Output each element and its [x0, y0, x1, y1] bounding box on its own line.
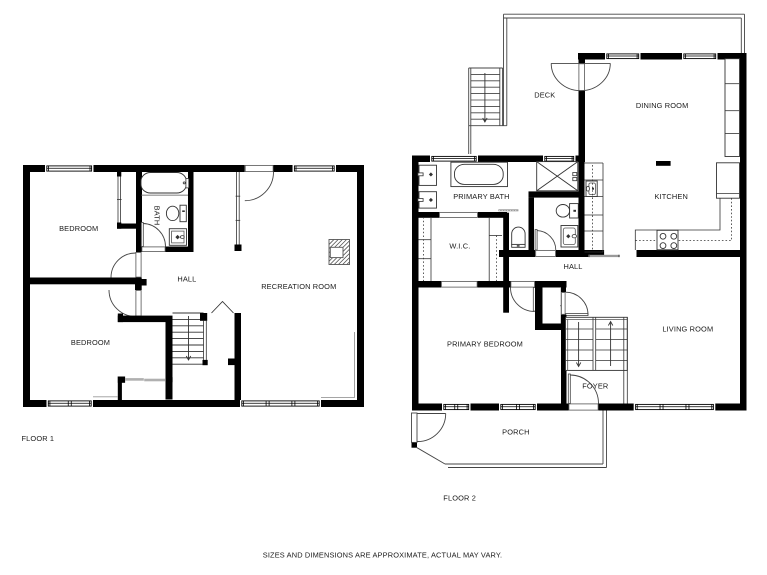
svg-text:HALL: HALL	[177, 274, 196, 283]
svg-text:BEDROOM: BEDROOM	[59, 224, 98, 233]
svg-text:W.I.C.: W.I.C.	[449, 241, 470, 250]
svg-text:HALL: HALL	[563, 262, 582, 271]
svg-text:DINING ROOM: DINING ROOM	[636, 101, 689, 110]
svg-text:LIVING ROOM: LIVING ROOM	[662, 324, 713, 333]
svg-text:BATH: BATH	[153, 206, 162, 226]
svg-text:SIZES AND DIMENSIONS ARE APPRO: SIZES AND DIMENSIONS ARE APPROXIMATE, AC…	[263, 550, 502, 559]
svg-text:FLOOR 1: FLOOR 1	[22, 434, 55, 443]
svg-text:PRIMARY BATH: PRIMARY BATH	[453, 192, 509, 201]
svg-text:FLOOR 2: FLOOR 2	[443, 493, 476, 502]
svg-text:FOYER: FOYER	[582, 382, 608, 391]
svg-text:KITCHEN: KITCHEN	[654, 192, 688, 201]
svg-text:BEDROOM: BEDROOM	[71, 338, 110, 347]
svg-text:RECREATION ROOM: RECREATION ROOM	[261, 282, 336, 291]
svg-text:PRIMARY BEDROOM: PRIMARY BEDROOM	[447, 339, 523, 348]
svg-text:PORCH: PORCH	[502, 427, 529, 436]
svg-text:DECK: DECK	[534, 90, 555, 99]
